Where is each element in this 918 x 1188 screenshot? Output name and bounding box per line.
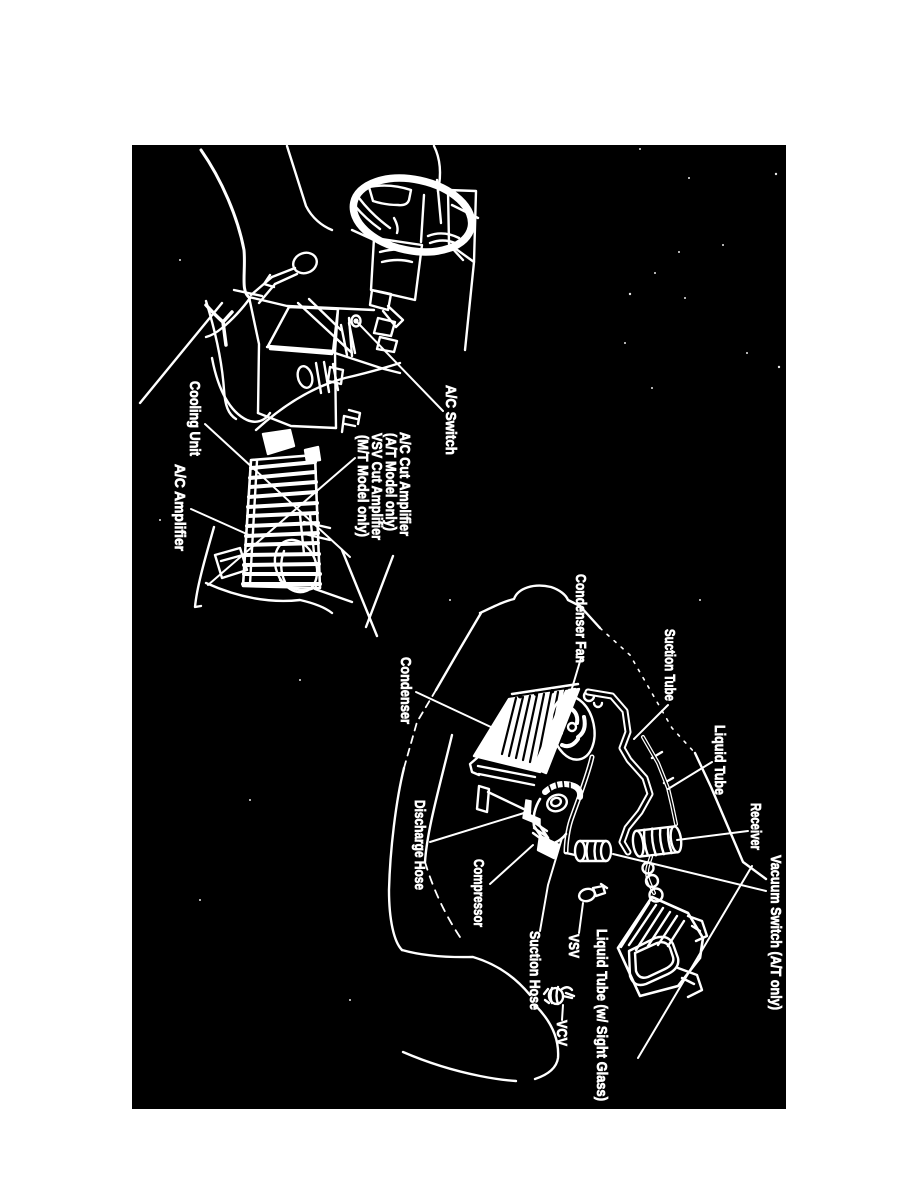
svg-text:Discharge Hose: Discharge Hose <box>411 800 428 890</box>
svg-text:Suction Hose: Suction Hose <box>526 931 543 1010</box>
svg-text:Liquid Tube (w/ Sight Glass): Liquid Tube (w/ Sight Glass) <box>593 929 610 1101</box>
svg-text:Condenser: Condenser <box>397 657 414 724</box>
svg-text:Liquid Tube: Liquid Tube <box>711 725 728 795</box>
svg-text:Receiver: Receiver <box>747 803 764 850</box>
svg-text:Cooling Unit: Cooling Unit <box>186 381 203 456</box>
svg-text:VCV: VCV <box>553 1020 570 1046</box>
svg-text:A/C Switch: A/C Switch <box>442 385 459 455</box>
svg-text:Condenser Fan: Condenser Fan <box>572 574 589 663</box>
svg-text:Compressor: Compressor <box>470 859 487 927</box>
svg-text:Vacuum Switch (A/T only): Vacuum Switch (A/T only) <box>767 855 784 1010</box>
svg-text:(M/T Model only): (M/T Model only) <box>354 435 371 537</box>
svg-text:A/C Amplifier: A/C Amplifier <box>171 464 188 551</box>
svg-text:VSV: VSV <box>565 934 582 958</box>
svg-text:Suction Tube: Suction Tube <box>661 629 678 701</box>
